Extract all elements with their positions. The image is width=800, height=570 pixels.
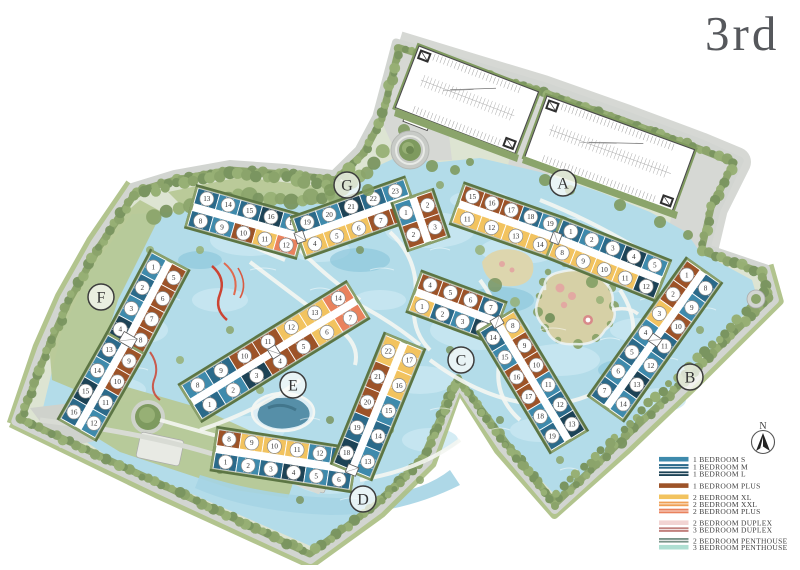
svg-text:10: 10	[241, 352, 249, 360]
svg-text:11: 11	[294, 446, 301, 454]
svg-text:16: 16	[488, 200, 496, 208]
svg-text:15: 15	[469, 193, 477, 201]
svg-text:1: 1	[152, 263, 156, 271]
svg-text:13: 13	[106, 346, 114, 354]
svg-text:5: 5	[653, 261, 657, 269]
svg-text:16: 16	[70, 408, 78, 416]
svg-text:11: 11	[265, 338, 272, 346]
svg-text:3: 3	[433, 224, 437, 232]
svg-text:6: 6	[337, 476, 341, 484]
svg-text:3: 3	[658, 310, 662, 318]
svg-text:8: 8	[196, 381, 200, 389]
svg-text:18: 18	[527, 213, 535, 221]
svg-text:19: 19	[547, 220, 555, 228]
svg-text:13: 13	[633, 381, 641, 389]
svg-text:6: 6	[161, 295, 165, 303]
svg-text:14: 14	[375, 433, 383, 441]
svg-text:14: 14	[225, 201, 233, 209]
svg-text:4: 4	[644, 329, 648, 337]
svg-text:13: 13	[512, 232, 520, 240]
svg-text:5: 5	[172, 274, 176, 282]
svg-text:9: 9	[219, 367, 223, 375]
svg-text:E: E	[288, 378, 298, 395]
svg-text:20: 20	[364, 398, 372, 406]
svg-text:15: 15	[501, 354, 509, 362]
svg-text:3 BEDROOM PENTHOUSE: 3 BEDROOM PENTHOUSE	[693, 543, 788, 552]
svg-text:15: 15	[82, 388, 90, 396]
svg-text:4: 4	[292, 469, 296, 477]
svg-text:9: 9	[127, 357, 131, 365]
svg-text:8: 8	[199, 217, 203, 225]
svg-text:3: 3	[255, 372, 259, 380]
svg-text:17: 17	[406, 356, 414, 364]
svg-text:11: 11	[464, 215, 471, 223]
svg-text:4: 4	[632, 253, 636, 261]
svg-text:4: 4	[278, 358, 282, 366]
svg-text:10: 10	[271, 443, 279, 451]
svg-text:2: 2	[426, 202, 430, 210]
svg-text:2: 2	[231, 386, 235, 394]
svg-text:2 BEDROOM PLUS: 2 BEDROOM PLUS	[693, 507, 761, 516]
svg-text:7: 7	[349, 314, 353, 322]
svg-text:9: 9	[581, 258, 585, 266]
svg-text:5: 5	[335, 232, 339, 240]
svg-text:2: 2	[141, 284, 145, 292]
svg-text:9: 9	[220, 223, 224, 231]
svg-text:14: 14	[620, 400, 628, 408]
svg-text:3 BEDROOM DUPLEX: 3 BEDROOM DUPLEX	[693, 526, 773, 535]
svg-text:17: 17	[508, 206, 516, 214]
svg-text:10: 10	[675, 323, 683, 331]
svg-text:5: 5	[302, 343, 306, 351]
svg-text:15: 15	[385, 407, 393, 415]
svg-text:2: 2	[671, 291, 675, 299]
svg-text:12: 12	[488, 224, 496, 232]
svg-text:1: 1	[420, 303, 424, 311]
svg-text:16: 16	[513, 373, 521, 381]
svg-text:13: 13	[311, 309, 319, 317]
svg-text:3: 3	[461, 318, 465, 326]
svg-text:16: 16	[395, 382, 403, 390]
svg-text:3: 3	[269, 465, 273, 473]
svg-text:6: 6	[616, 368, 620, 376]
svg-text:8: 8	[704, 285, 708, 293]
svg-text:12: 12	[643, 283, 651, 291]
svg-text:8: 8	[560, 249, 564, 257]
svg-text:14: 14	[490, 334, 498, 342]
svg-text:1: 1	[404, 209, 408, 217]
svg-text:19: 19	[304, 219, 312, 227]
svg-text:12: 12	[557, 401, 565, 409]
svg-text:6: 6	[469, 296, 473, 304]
svg-text:11: 11	[661, 343, 668, 351]
svg-text:3rd: 3rd	[705, 6, 779, 61]
svg-text:18: 18	[537, 413, 545, 421]
svg-text:7: 7	[379, 217, 383, 225]
svg-text:11: 11	[545, 381, 552, 389]
svg-text:D: D	[357, 492, 369, 509]
svg-text:19: 19	[549, 432, 557, 440]
svg-text:6: 6	[325, 329, 329, 337]
svg-text:6: 6	[357, 225, 361, 233]
svg-text:8: 8	[227, 436, 231, 444]
svg-text:9: 9	[523, 342, 527, 350]
svg-text:3: 3	[611, 245, 615, 253]
svg-text:12: 12	[288, 324, 296, 332]
svg-text:15: 15	[246, 207, 254, 215]
svg-text:F: F	[97, 290, 106, 307]
svg-text:G: G	[341, 178, 353, 195]
svg-text:2: 2	[412, 231, 416, 239]
svg-text:22: 22	[370, 195, 378, 203]
svg-text:13: 13	[203, 195, 211, 203]
svg-text:11: 11	[102, 399, 109, 407]
svg-text:8: 8	[139, 336, 143, 344]
svg-text:8: 8	[511, 322, 515, 330]
svg-text:13: 13	[568, 421, 576, 429]
svg-text:11: 11	[261, 235, 268, 243]
svg-text:5: 5	[449, 289, 453, 297]
svg-text:1 BEDROOM L: 1 BEDROOM L	[693, 470, 746, 479]
svg-text:19: 19	[353, 424, 361, 432]
svg-text:1: 1	[208, 401, 212, 409]
svg-text:2: 2	[441, 310, 445, 318]
svg-text:14: 14	[94, 367, 102, 375]
svg-text:1: 1	[569, 228, 573, 236]
svg-text:1 BEDROOM PLUS: 1 BEDROOM PLUS	[693, 482, 761, 491]
svg-text:12: 12	[90, 420, 98, 428]
svg-text:16: 16	[267, 213, 275, 221]
svg-text:21: 21	[348, 203, 356, 211]
svg-text:2: 2	[590, 236, 594, 244]
svg-text:23: 23	[392, 187, 400, 195]
svg-text:9: 9	[250, 439, 254, 447]
svg-text:C: C	[456, 353, 467, 370]
svg-text:18: 18	[343, 449, 351, 457]
svg-text:4: 4	[119, 326, 123, 334]
svg-text:A: A	[557, 176, 569, 193]
svg-text:1: 1	[224, 458, 228, 466]
svg-text:7: 7	[489, 304, 493, 312]
svg-text:7: 7	[603, 387, 607, 395]
svg-text:14: 14	[335, 295, 343, 303]
svg-text:10: 10	[240, 229, 248, 237]
svg-text:10: 10	[601, 266, 609, 274]
svg-text:4: 4	[313, 240, 317, 248]
svg-text:11: 11	[622, 274, 629, 282]
svg-text:7: 7	[150, 316, 154, 324]
svg-text:14: 14	[537, 241, 545, 249]
svg-text:21: 21	[374, 373, 382, 381]
svg-text:22: 22	[385, 348, 393, 356]
svg-text:4: 4	[428, 281, 432, 289]
svg-text:10: 10	[533, 362, 541, 370]
svg-text:20: 20	[326, 211, 334, 219]
svg-text:5: 5	[314, 472, 318, 480]
svg-text:3: 3	[130, 305, 134, 313]
svg-text:12: 12	[647, 362, 655, 370]
svg-text:12: 12	[316, 450, 324, 458]
svg-text:9: 9	[690, 304, 694, 312]
svg-text:17: 17	[525, 393, 533, 401]
svg-text:10: 10	[114, 378, 122, 386]
svg-text:12: 12	[283, 241, 291, 249]
svg-text:5: 5	[630, 348, 634, 356]
svg-text:1: 1	[685, 271, 689, 279]
svg-text:2: 2	[246, 462, 250, 470]
svg-text:13: 13	[364, 458, 372, 466]
svg-text:B: B	[685, 370, 696, 387]
